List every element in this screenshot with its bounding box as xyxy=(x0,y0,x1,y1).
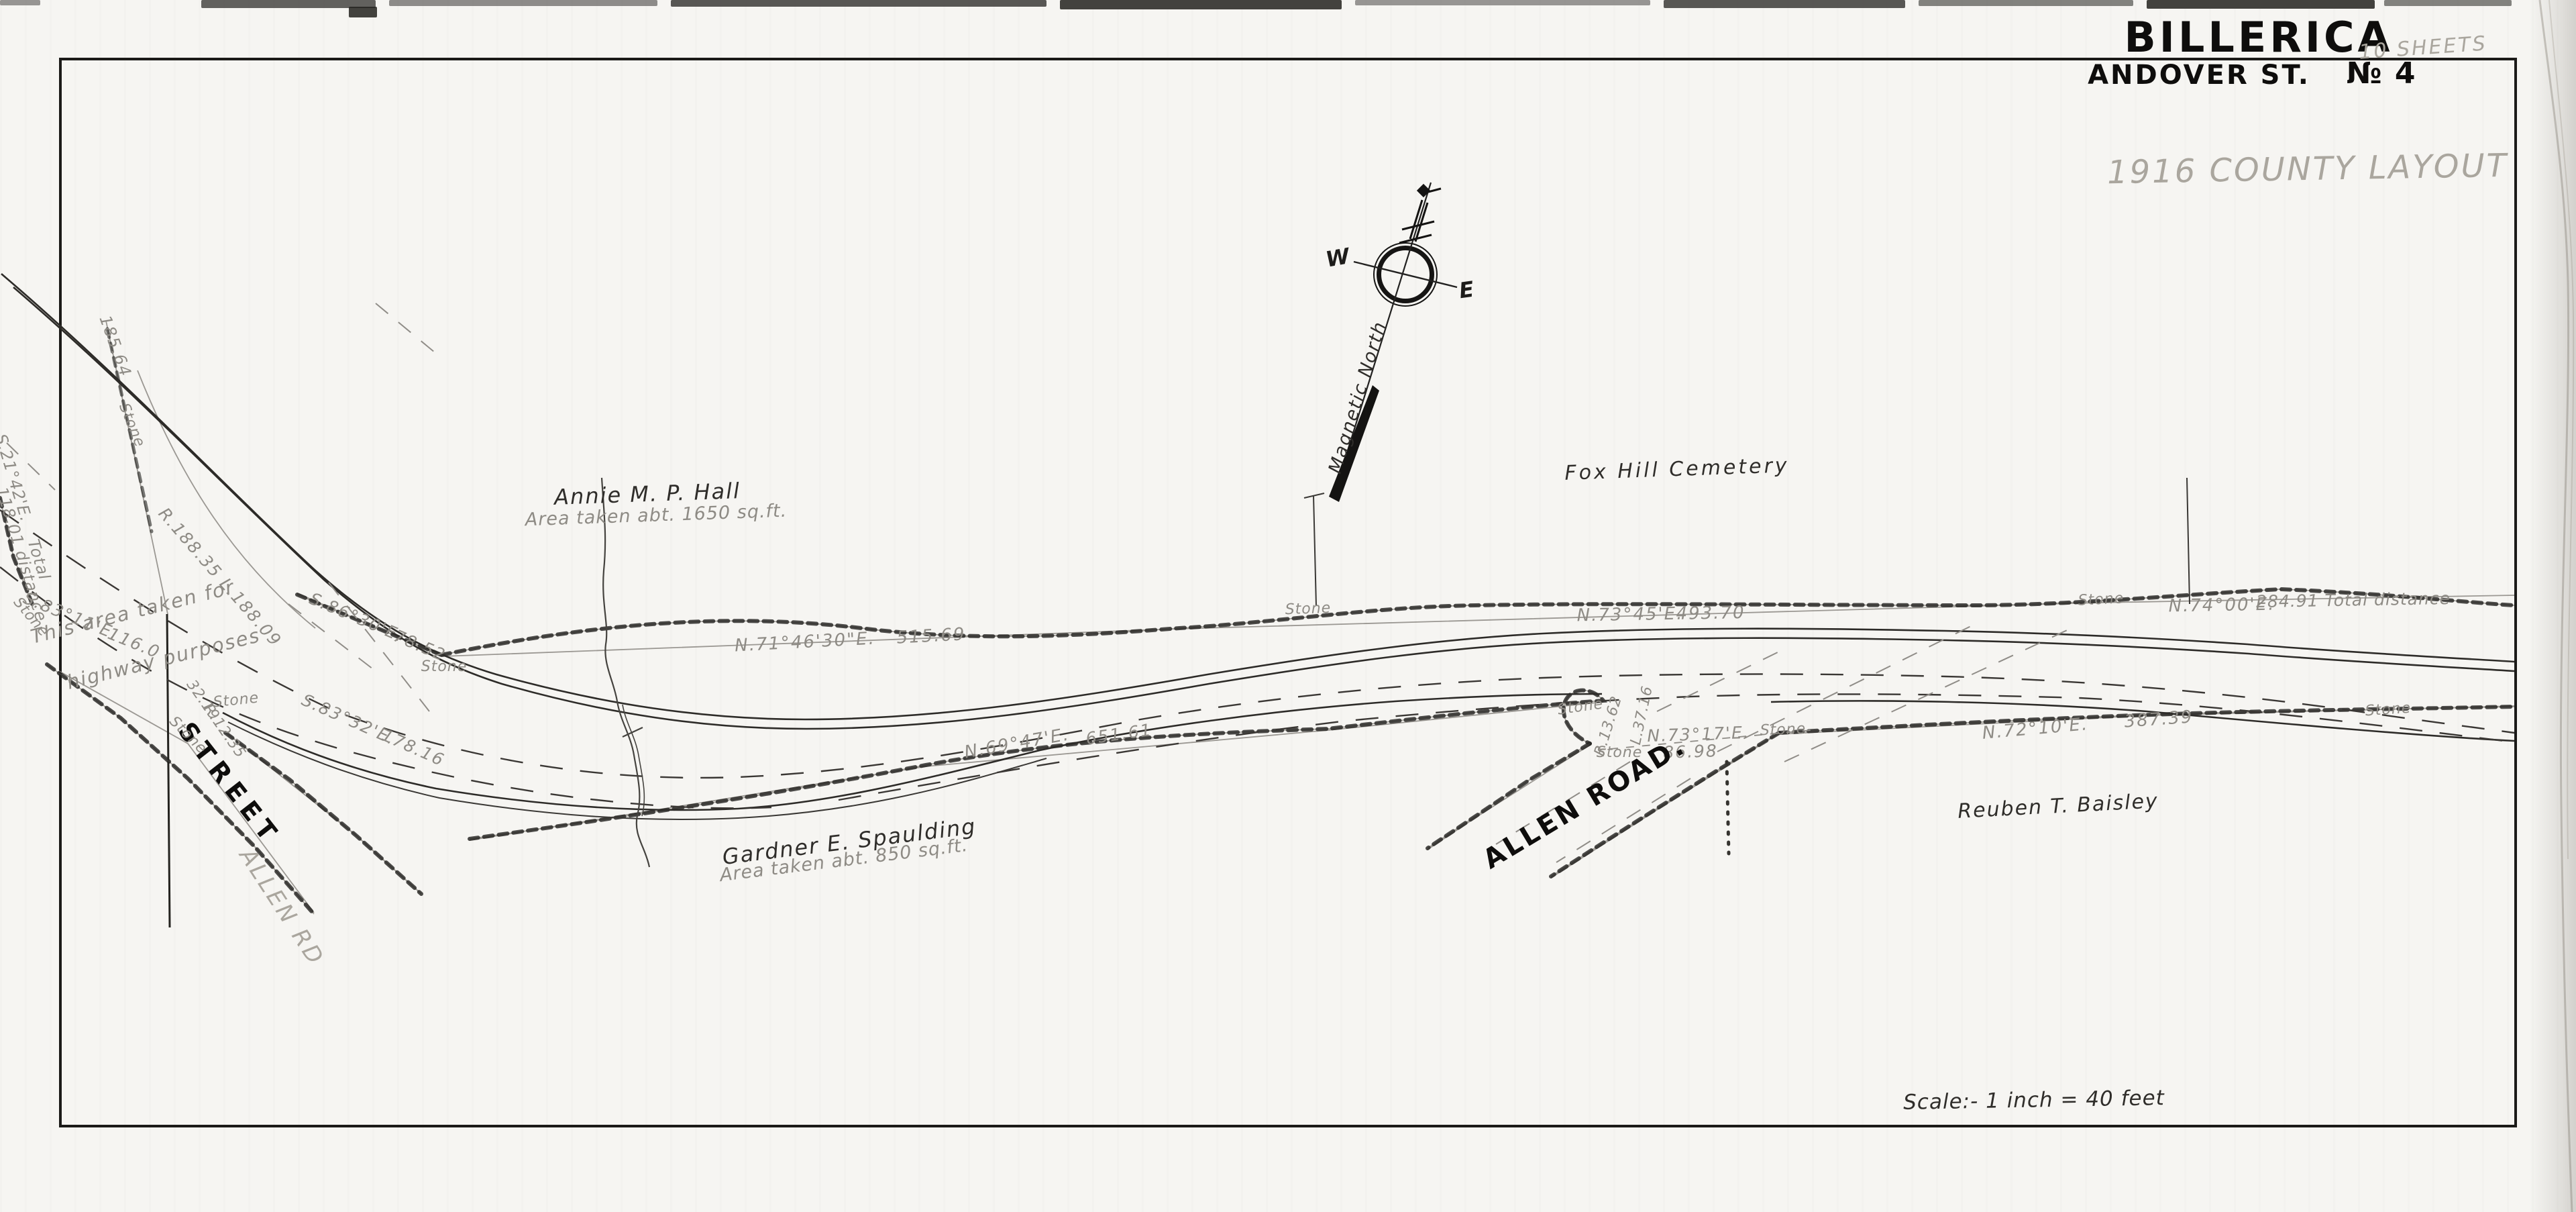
bearing-n7345e: N.73°45'E. xyxy=(1576,605,1683,625)
distance-28491-total: 284.91 Total distance xyxy=(2256,590,2451,610)
title-andover-st: ANDOVER ST. xyxy=(2088,62,2310,89)
dashed-location-lines xyxy=(0,303,2514,862)
scale-note: Scale:- 1 inch = 40 feet xyxy=(1903,1088,2165,1113)
stone-marker-label: Stone xyxy=(2078,591,2125,609)
paper-edge-shade xyxy=(2529,0,2576,1212)
title-billerica: BILLERICA xyxy=(2125,17,2394,58)
compass-west-label: W xyxy=(1324,245,1351,270)
fence-line xyxy=(1727,762,1729,854)
stone-marker-label: Stone xyxy=(1760,722,1806,738)
stone-marker-label: Stone xyxy=(1285,601,1331,617)
road-edge-north xyxy=(1,274,2514,729)
title-sheet-no: № 4 xyxy=(2347,59,2417,89)
distance-51569: 515.69 xyxy=(896,625,966,646)
survey-map-sheet: BILLERICAANDOVER ST.№ 410 SHEETS1916 COU… xyxy=(0,0,2576,1212)
property-lines-north xyxy=(1304,478,2190,606)
map-border xyxy=(60,59,2516,1126)
distance-38739: 387.39 xyxy=(2124,708,2194,730)
pencil-county-layout: 1916 COUNTY LAYOUT xyxy=(2107,150,2509,189)
compass-east-label: E xyxy=(1458,279,1475,302)
compass-needle-fletching xyxy=(1399,185,1441,243)
stone-marker-label: Stone xyxy=(421,660,468,674)
stone-marker-label: Stone xyxy=(2365,701,2412,719)
stone-marker-label: Stone xyxy=(1597,746,1643,760)
distance-49370: 493.70 xyxy=(1676,604,1745,623)
